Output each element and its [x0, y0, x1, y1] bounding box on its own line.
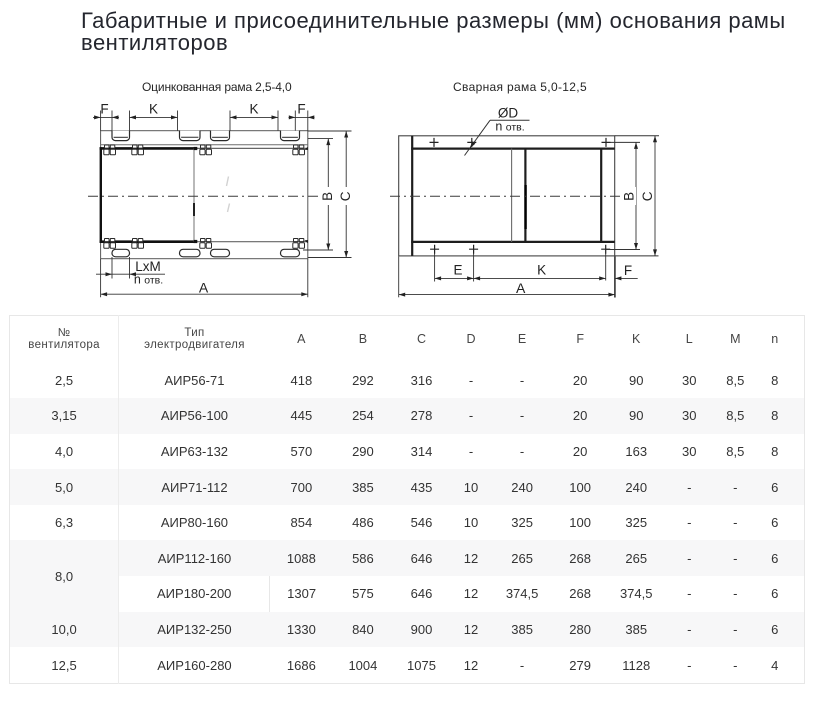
svg-text:B: B [621, 192, 636, 201]
svg-text:n отв.: n отв. [134, 272, 163, 286]
svg-text:C: C [640, 191, 655, 201]
svg-text:K: K [149, 101, 158, 116]
svg-text:ØD: ØD [498, 105, 519, 120]
svg-text:F: F [297, 101, 305, 116]
svg-text:B: B [320, 192, 335, 201]
svg-text:C: C [338, 191, 353, 201]
svg-text:F: F [624, 263, 632, 278]
svg-text:K: K [537, 262, 546, 277]
svg-text:E: E [453, 262, 462, 277]
svg-text:n отв.: n отв. [495, 120, 524, 134]
svg-text:A: A [199, 279, 209, 295]
svg-text:A: A [516, 280, 526, 296]
svg-text:K: K [249, 101, 258, 116]
svg-text:F: F [100, 101, 108, 116]
